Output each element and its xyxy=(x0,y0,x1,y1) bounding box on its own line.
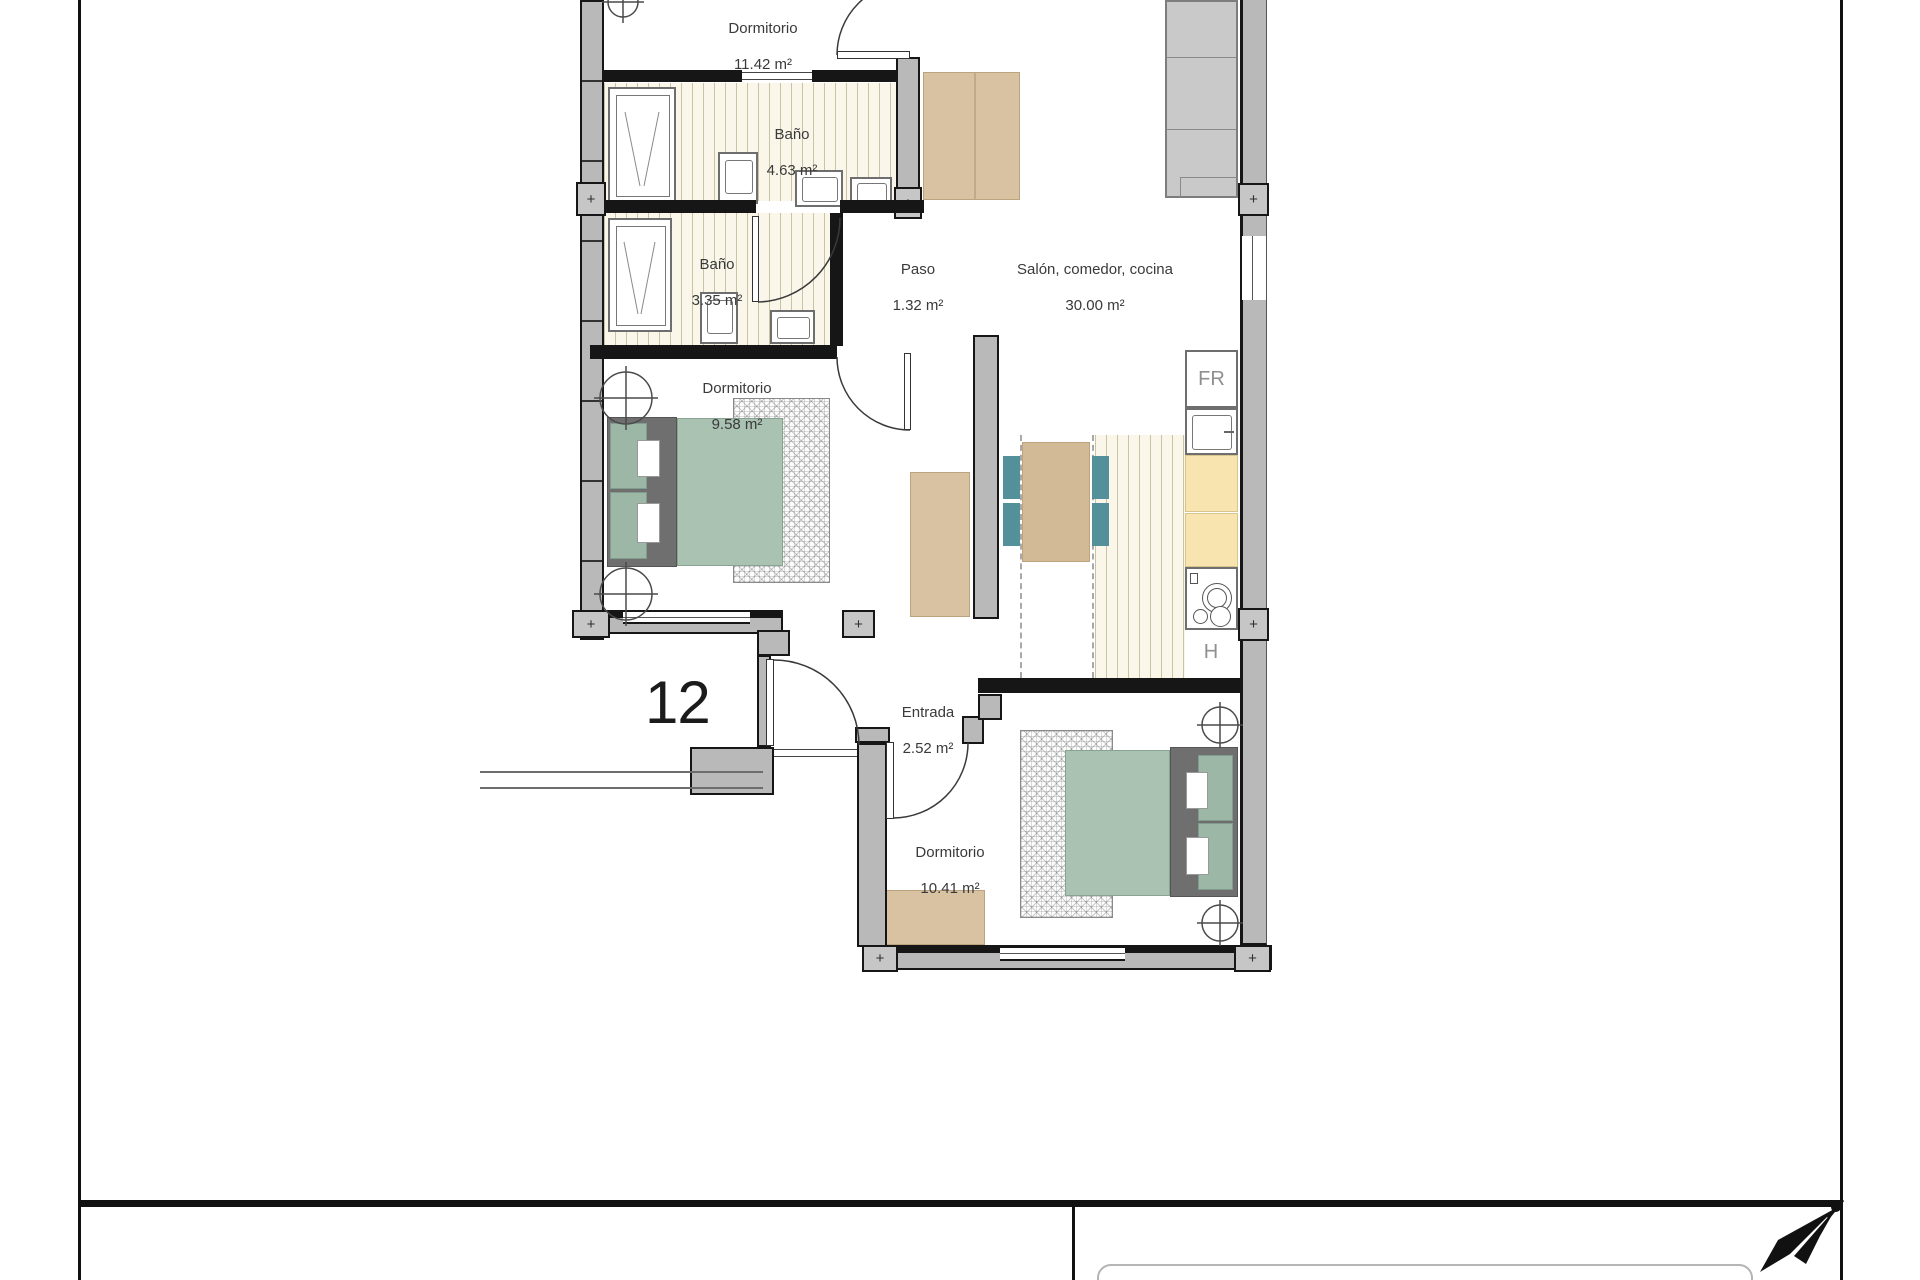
partition-bathroom2-dormitorio2 xyxy=(590,345,837,359)
room-label-dormitorio1: Dormitorio 11.42 m² xyxy=(683,2,843,92)
hob-control xyxy=(1190,573,1198,584)
sideboard xyxy=(923,72,1020,200)
room-name: Salón, comedor, cocina xyxy=(1000,261,1190,279)
room-label-bano1: Baño 4.63 m² xyxy=(737,108,847,198)
fridge-label: FR xyxy=(1187,352,1236,406)
door-arc xyxy=(837,357,910,430)
dining-chair xyxy=(1092,503,1109,546)
room-label-bano2: Baño 3.35 m² xyxy=(662,238,772,328)
wall-junction-marker: + xyxy=(842,610,875,638)
kitchen-cabinet xyxy=(1185,513,1238,567)
title-block-divider xyxy=(1072,1207,1075,1280)
bed3-pillow xyxy=(1186,837,1209,875)
window-salon xyxy=(1240,236,1267,300)
kitchen-cabinet xyxy=(1185,455,1238,512)
room-name: Entrada xyxy=(868,704,988,722)
title-block-field xyxy=(1097,1264,1753,1280)
shower-tray xyxy=(608,87,676,203)
landing-edge-line xyxy=(480,771,763,773)
room-area: 10.41 m² xyxy=(870,880,1030,898)
sofa-cushion-line xyxy=(1167,129,1236,130)
room-label-paso: Paso 1.32 m² xyxy=(863,243,973,333)
window-dormitorio2 xyxy=(623,610,750,624)
room-area: 4.63 m² xyxy=(737,162,847,180)
bedroom2-wardrobe xyxy=(910,472,970,617)
sideboard-divider xyxy=(974,73,976,199)
room-area: 3.35 m² xyxy=(662,292,772,310)
frame-right-border xyxy=(1840,0,1843,1280)
landing-edge-line xyxy=(480,787,763,789)
room-name: Dormitorio xyxy=(683,20,843,38)
hob-burner xyxy=(1210,606,1231,627)
hob-label: H xyxy=(1196,640,1226,664)
bed3-mattress xyxy=(1065,750,1170,896)
dining-chair xyxy=(1003,456,1020,499)
title-block-separator xyxy=(78,1200,1843,1207)
room-label-salon: Salón, comedor, cocina 30.00 m² xyxy=(1000,243,1190,333)
room-label-dormitorio3: Dormitorio 10.41 m² xyxy=(870,826,1030,916)
wall-junction-marker: + xyxy=(576,182,606,216)
hob-burner xyxy=(1193,609,1208,624)
door-arc xyxy=(774,660,859,745)
sink-basin xyxy=(777,317,810,339)
room-name: Baño xyxy=(662,256,772,274)
entry-threshold xyxy=(774,749,859,757)
wall-dormitorio2-right xyxy=(973,335,999,619)
partition-bathrooms xyxy=(604,200,756,213)
room-name: Baño xyxy=(737,126,847,144)
wall-dormitorio1-right xyxy=(896,57,920,189)
north-arrow-icon xyxy=(1748,1198,1848,1280)
room-label-entrada: Entrada 2.52 m² xyxy=(868,686,988,776)
unit-number: 12 xyxy=(645,668,710,737)
exterior-wall-right xyxy=(1240,0,1267,945)
wall-junction-marker: + xyxy=(862,945,898,972)
room-label-dormitorio2: Dormitorio 9.58 m² xyxy=(657,362,817,452)
room-name: Dormitorio xyxy=(657,380,817,398)
wall-junction-marker: + xyxy=(1234,945,1271,972)
sofa-cushion-line xyxy=(1167,57,1236,58)
window-glass-line xyxy=(1252,236,1253,300)
hob xyxy=(1185,567,1238,630)
door-leaf-dormitorio2 xyxy=(904,353,911,430)
sofa-armrest xyxy=(1180,177,1237,197)
room-area: 9.58 m² xyxy=(657,416,817,434)
floor-plan-sheet: FR H xyxy=(0,0,1920,1280)
room-area: 11.42 m² xyxy=(683,56,843,74)
dining-chair xyxy=(1003,503,1020,546)
room-area: 1.32 m² xyxy=(863,297,973,315)
bed2-pillow xyxy=(637,503,660,543)
room-name: Paso xyxy=(863,261,973,279)
sofa xyxy=(1165,0,1238,198)
sink-tap xyxy=(1224,431,1234,433)
hob-burner xyxy=(1207,588,1227,608)
room-name: Dormitorio xyxy=(870,844,1030,862)
fridge: FR xyxy=(1185,350,1238,408)
window-glass-line xyxy=(623,617,750,618)
kitchen-sink xyxy=(1185,408,1238,455)
wall-junction-marker: + xyxy=(572,610,610,638)
partition-bathrooms xyxy=(840,200,924,213)
door-leaf-dormitorio1 xyxy=(837,51,910,59)
room-area: 2.52 m² xyxy=(868,740,988,758)
bathroom2-sink xyxy=(770,310,815,344)
door-arc xyxy=(837,0,910,55)
shower-glass xyxy=(616,95,670,197)
wall-junction-marker: + xyxy=(1238,608,1269,641)
wall-bathroom2-right xyxy=(830,213,843,346)
dining-chair xyxy=(1092,456,1109,499)
dining-table xyxy=(1022,442,1090,562)
bed3-pillow xyxy=(1186,772,1208,809)
wall-bedroom3-top xyxy=(978,678,1242,693)
exterior-wall-left xyxy=(580,0,604,640)
window-glass-line xyxy=(1000,953,1125,954)
entrada-corner-step xyxy=(757,630,790,656)
wall-junction-marker: + xyxy=(1238,183,1269,216)
room-area: 30.00 m² xyxy=(1000,297,1190,315)
frame-left-border xyxy=(78,0,81,1280)
door-leaf-entry xyxy=(766,659,774,746)
window-bedroom3 xyxy=(1000,946,1125,961)
shower-glass xyxy=(616,226,666,326)
